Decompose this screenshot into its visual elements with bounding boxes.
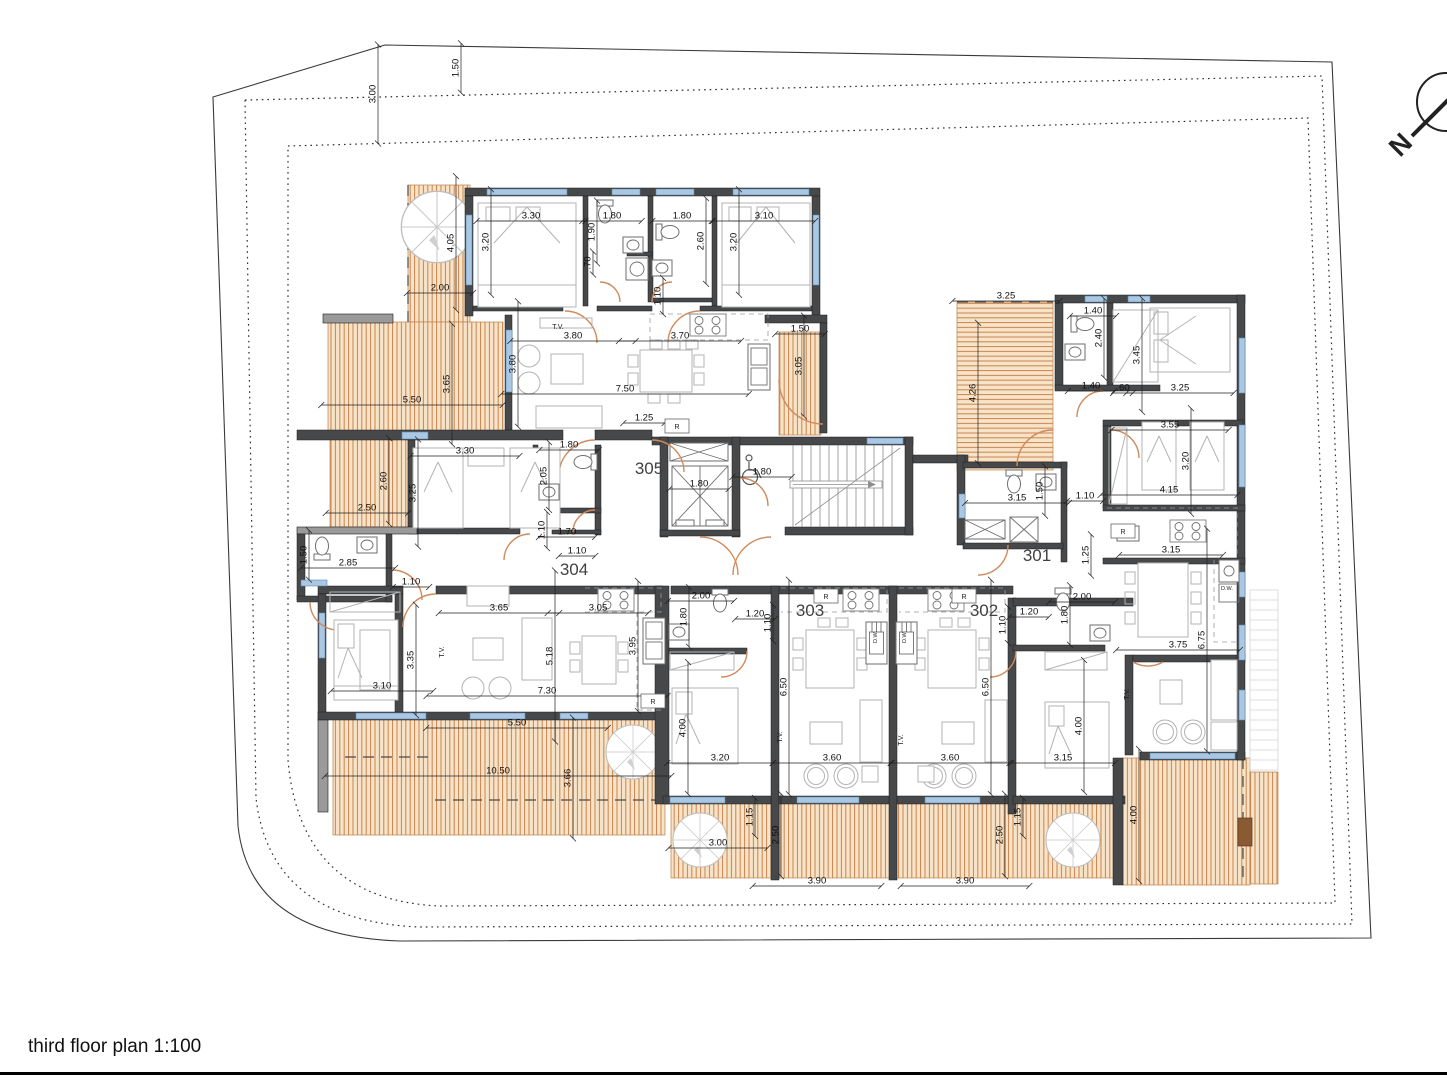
plan-title: third floor plan 1:100 bbox=[28, 1036, 201, 1058]
svg-text:1.40: 1.40 bbox=[1084, 306, 1103, 317]
svg-text:3.95: 3.95 bbox=[628, 637, 639, 656]
svg-text:D.W.: D.W. bbox=[902, 631, 908, 643]
svg-text:1.20: 1.20 bbox=[746, 609, 765, 620]
svg-text:.70: .70 bbox=[583, 256, 594, 269]
svg-text:1.40: 1.40 bbox=[1082, 381, 1101, 392]
svg-text:2.05: 2.05 bbox=[539, 467, 550, 486]
floor-plan-drawing: 3.001.503.301.901.801.802.603.103.203.20… bbox=[0, 0, 1447, 1084]
svg-text:5.18: 5.18 bbox=[545, 647, 556, 666]
dimension: 2.85 bbox=[298, 558, 398, 572]
svg-text:1.10: 1.10 bbox=[568, 546, 587, 557]
svg-text:4.00: 4.00 bbox=[1074, 717, 1085, 736]
svg-text:3.00: 3.00 bbox=[368, 85, 379, 104]
svg-text:1.20: 1.20 bbox=[1020, 607, 1039, 618]
svg-text:T.V.: T.V. bbox=[898, 734, 905, 745]
fixture-label: T.V. bbox=[439, 646, 446, 657]
main-staircase bbox=[790, 445, 900, 527]
secondary-elevator bbox=[965, 517, 1038, 542]
fixture-label: T.V. bbox=[777, 731, 784, 742]
svg-text:4.00: 4.00 bbox=[678, 719, 689, 738]
svg-text:1.15: 1.15 bbox=[745, 808, 756, 827]
svg-text:1.10: 1.10 bbox=[537, 521, 548, 540]
svg-text:4.26: 4.26 bbox=[968, 384, 979, 403]
svg-text:1.50: 1.50 bbox=[451, 59, 462, 78]
dimension: 2.60 bbox=[696, 195, 710, 287]
svg-text:1.10: 1.10 bbox=[653, 287, 664, 306]
unit-number-304: 304 bbox=[560, 560, 588, 579]
svg-text:1.80: 1.80 bbox=[603, 211, 622, 222]
svg-text:3.30: 3.30 bbox=[522, 211, 541, 222]
svg-text:T.V.: T.V. bbox=[439, 646, 446, 657]
svg-text:1.80: 1.80 bbox=[560, 440, 579, 451]
fixture-label: T.V. bbox=[552, 324, 563, 331]
svg-text:6.50: 6.50 bbox=[981, 678, 992, 697]
svg-text:D.W.: D.W. bbox=[873, 631, 879, 643]
unit-number-302: 302 bbox=[970, 601, 998, 620]
svg-text:3.65: 3.65 bbox=[442, 375, 453, 394]
svg-text:T.V.: T.V. bbox=[1124, 688, 1131, 699]
dimension: 3.15 bbox=[962, 493, 1072, 507]
fixture-label: D.W. bbox=[1221, 586, 1233, 592]
svg-text:4.00: 4.00 bbox=[1129, 806, 1140, 825]
svg-text:R: R bbox=[650, 699, 655, 706]
living-305 bbox=[518, 314, 770, 428]
twin-beds-305 bbox=[413, 448, 560, 528]
svg-text:R: R bbox=[823, 594, 828, 601]
fixture-label: R bbox=[641, 694, 665, 708]
dimension: 1.50 bbox=[1035, 463, 1049, 519]
svg-text:3.00: 3.00 bbox=[709, 838, 728, 849]
svg-text:2.00: 2.00 bbox=[692, 591, 711, 602]
svg-text:2.60: 2.60 bbox=[379, 472, 390, 491]
svg-text:3.25: 3.25 bbox=[408, 484, 419, 503]
svg-text:1.50: 1.50 bbox=[299, 546, 310, 565]
svg-text:3.70: 3.70 bbox=[671, 331, 690, 342]
svg-text:R: R bbox=[961, 594, 966, 601]
svg-text:1.10: 1.10 bbox=[763, 614, 774, 633]
fixture-label: D.W. bbox=[873, 631, 879, 643]
svg-text:3.45: 3.45 bbox=[1132, 346, 1143, 365]
svg-text:T.V.: T.V. bbox=[552, 324, 563, 331]
fixture-label: R bbox=[665, 419, 689, 433]
svg-text:D.W.: D.W. bbox=[1221, 586, 1233, 592]
svg-text:1.50: 1.50 bbox=[791, 324, 810, 335]
svg-text:3.60: 3.60 bbox=[941, 753, 960, 764]
svg-text:1.80: 1.80 bbox=[690, 479, 709, 490]
fixture-label: R bbox=[952, 589, 976, 603]
fixture-label: T.V. bbox=[898, 734, 905, 745]
svg-text:3.10: 3.10 bbox=[755, 211, 774, 222]
svg-text:T.V.: T.V. bbox=[777, 731, 784, 742]
dimension: 1.50 bbox=[451, 40, 465, 96]
external-stair bbox=[1250, 590, 1278, 770]
svg-text:3.75: 3.75 bbox=[1169, 640, 1188, 651]
svg-text:4.15: 4.15 bbox=[1160, 485, 1179, 496]
dimension: 3.00 bbox=[368, 42, 382, 147]
dimension: 3.15 bbox=[1116, 545, 1226, 559]
sheet-border-line bbox=[0, 1072, 1447, 1075]
svg-text:2.50: 2.50 bbox=[358, 503, 377, 514]
svg-text:3.15: 3.15 bbox=[1008, 493, 1027, 504]
svg-text:2.50: 2.50 bbox=[771, 826, 782, 845]
fixture-label: T.V. bbox=[1124, 688, 1131, 699]
dimension: 1.80 bbox=[579, 211, 644, 225]
fixture-label: R bbox=[1111, 524, 1135, 538]
svg-text:3.25: 3.25 bbox=[997, 291, 1016, 302]
svg-text:R: R bbox=[674, 424, 679, 431]
svg-text:7.30: 7.30 bbox=[538, 686, 557, 697]
dimension: 3.80 bbox=[507, 331, 638, 345]
svg-text:2.85: 2.85 bbox=[339, 558, 358, 569]
svg-text:3.20: 3.20 bbox=[711, 753, 730, 764]
svg-text:2.40: 2.40 bbox=[1094, 329, 1105, 348]
svg-text:1.70: 1.70 bbox=[558, 527, 577, 538]
svg-text:1.80: 1.80 bbox=[673, 211, 692, 222]
svg-text:3.20: 3.20 bbox=[481, 233, 492, 252]
svg-text:1.10: 1.10 bbox=[1076, 491, 1095, 502]
svg-text:1.80: 1.80 bbox=[1060, 606, 1071, 625]
svg-text:4.05: 4.05 bbox=[446, 234, 457, 253]
svg-text:1.80: 1.80 bbox=[753, 467, 772, 478]
svg-text:3.66: 3.66 bbox=[563, 769, 574, 788]
svg-text:1.25: 1.25 bbox=[635, 413, 654, 424]
unit-number-301: 301 bbox=[1023, 546, 1051, 565]
svg-text:1.80: 1.80 bbox=[679, 608, 690, 627]
north-arrow: N bbox=[1383, 73, 1447, 162]
svg-text:3.05: 3.05 bbox=[794, 357, 805, 376]
unit-number-303: 303 bbox=[796, 601, 824, 620]
svg-text:3.90: 3.90 bbox=[956, 876, 975, 887]
svg-text:1.50: 1.50 bbox=[1035, 482, 1046, 501]
svg-text:2.00: 2.00 bbox=[431, 283, 450, 294]
svg-text:10.50: 10.50 bbox=[486, 766, 510, 777]
dimension: 1.10 bbox=[653, 275, 667, 317]
svg-text:1.10: 1.10 bbox=[402, 577, 421, 588]
svg-text:2.60: 2.60 bbox=[696, 232, 707, 251]
dimension: 3.75 bbox=[1113, 640, 1243, 654]
svg-text:3.65: 3.65 bbox=[490, 603, 509, 614]
dimension: 1.25 bbox=[1081, 531, 1095, 578]
svg-text:3.15: 3.15 bbox=[1054, 753, 1073, 764]
dimension: 3.35 bbox=[406, 602, 420, 719]
svg-text:3.20: 3.20 bbox=[1181, 452, 1192, 471]
dimension: 1.10 bbox=[556, 546, 598, 560]
svg-text:3.55: 3.55 bbox=[1161, 420, 1180, 431]
dimension: 3.05 bbox=[545, 603, 652, 617]
dimension: 1.25 bbox=[620, 413, 667, 427]
bed-301-upper bbox=[1150, 308, 1230, 372]
svg-text:1.90: 1.90 bbox=[587, 223, 598, 242]
svg-text:3.35: 3.35 bbox=[406, 651, 417, 670]
dimension: 7.30 bbox=[424, 686, 671, 700]
dimension: 6.50 bbox=[779, 577, 793, 798]
svg-text:3.15: 3.15 bbox=[1162, 545, 1181, 556]
svg-text:3.90: 3.90 bbox=[808, 876, 827, 887]
floor-plan-page: 3.001.503.301.901.801.802.603.103.203.20… bbox=[0, 0, 1447, 1084]
dimension: 3.65 bbox=[436, 603, 562, 617]
svg-text:3.25: 3.25 bbox=[1171, 383, 1190, 394]
svg-text:3.20: 3.20 bbox=[729, 233, 740, 252]
dimension: 1.80 bbox=[649, 211, 714, 225]
svg-text:3.10: 3.10 bbox=[373, 681, 392, 692]
svg-text:3.80: 3.80 bbox=[564, 331, 583, 342]
unit-number-305: 305 bbox=[635, 459, 663, 478]
fixture-label: D.W. bbox=[902, 631, 908, 643]
dimension: 3.45 bbox=[1132, 295, 1146, 415]
svg-text:2.50: 2.50 bbox=[995, 826, 1006, 845]
svg-text:3.60: 3.60 bbox=[823, 753, 842, 764]
svg-text:3.05: 3.05 bbox=[589, 603, 608, 614]
svg-text:1.25: 1.25 bbox=[1081, 546, 1092, 565]
svg-text:1.15: 1.15 bbox=[1013, 808, 1024, 827]
svg-text:6.75: 6.75 bbox=[1197, 631, 1208, 650]
svg-text:5.50: 5.50 bbox=[403, 395, 422, 406]
svg-text:1.10: 1.10 bbox=[998, 616, 1009, 635]
svg-text:5.50: 5.50 bbox=[508, 718, 527, 729]
fixture-label: R bbox=[814, 589, 838, 603]
svg-text:7.50: 7.50 bbox=[616, 384, 635, 395]
svg-text:2.00: 2.00 bbox=[1073, 592, 1092, 603]
svg-text:3.80: 3.80 bbox=[508, 355, 519, 374]
dimension: 7.50 bbox=[498, 384, 752, 398]
svg-text:R: R bbox=[1120, 529, 1125, 536]
svg-text:3.30: 3.30 bbox=[456, 446, 475, 457]
svg-text:6.50: 6.50 bbox=[779, 678, 790, 697]
